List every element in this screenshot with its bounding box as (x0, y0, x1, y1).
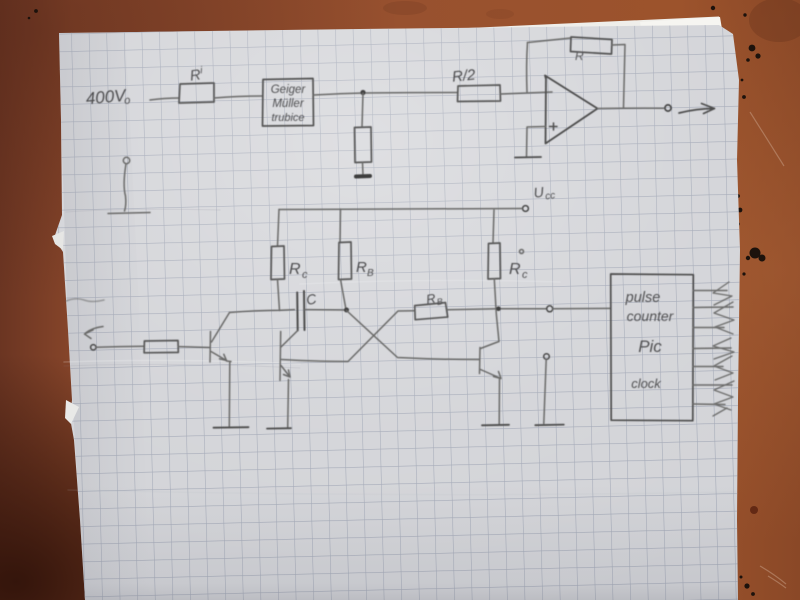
svg-text:Pic: Pic (638, 337, 662, 356)
svg-text:o: o (124, 95, 131, 107)
svg-text:clock: clock (631, 376, 662, 391)
svg-text:Geiger: Geiger (271, 84, 307, 96)
svg-text:R: R (356, 259, 367, 276)
svg-text:Müller: Müller (272, 98, 304, 110)
svg-text:R: R (289, 261, 301, 278)
svg-text:400V: 400V (85, 86, 128, 109)
svg-text:counter: counter (627, 308, 675, 324)
svg-text:cc: cc (545, 190, 556, 202)
svg-text:trubice: trubice (271, 112, 304, 124)
svg-text:c: c (522, 269, 528, 281)
svg-text:R: R (509, 261, 521, 278)
svg-text:R: R (575, 49, 584, 63)
svg-text:pulse: pulse (625, 290, 661, 306)
svg-text:R/2: R/2 (451, 66, 477, 85)
svg-text:c: c (302, 269, 308, 281)
svg-text:B: B (367, 268, 374, 279)
